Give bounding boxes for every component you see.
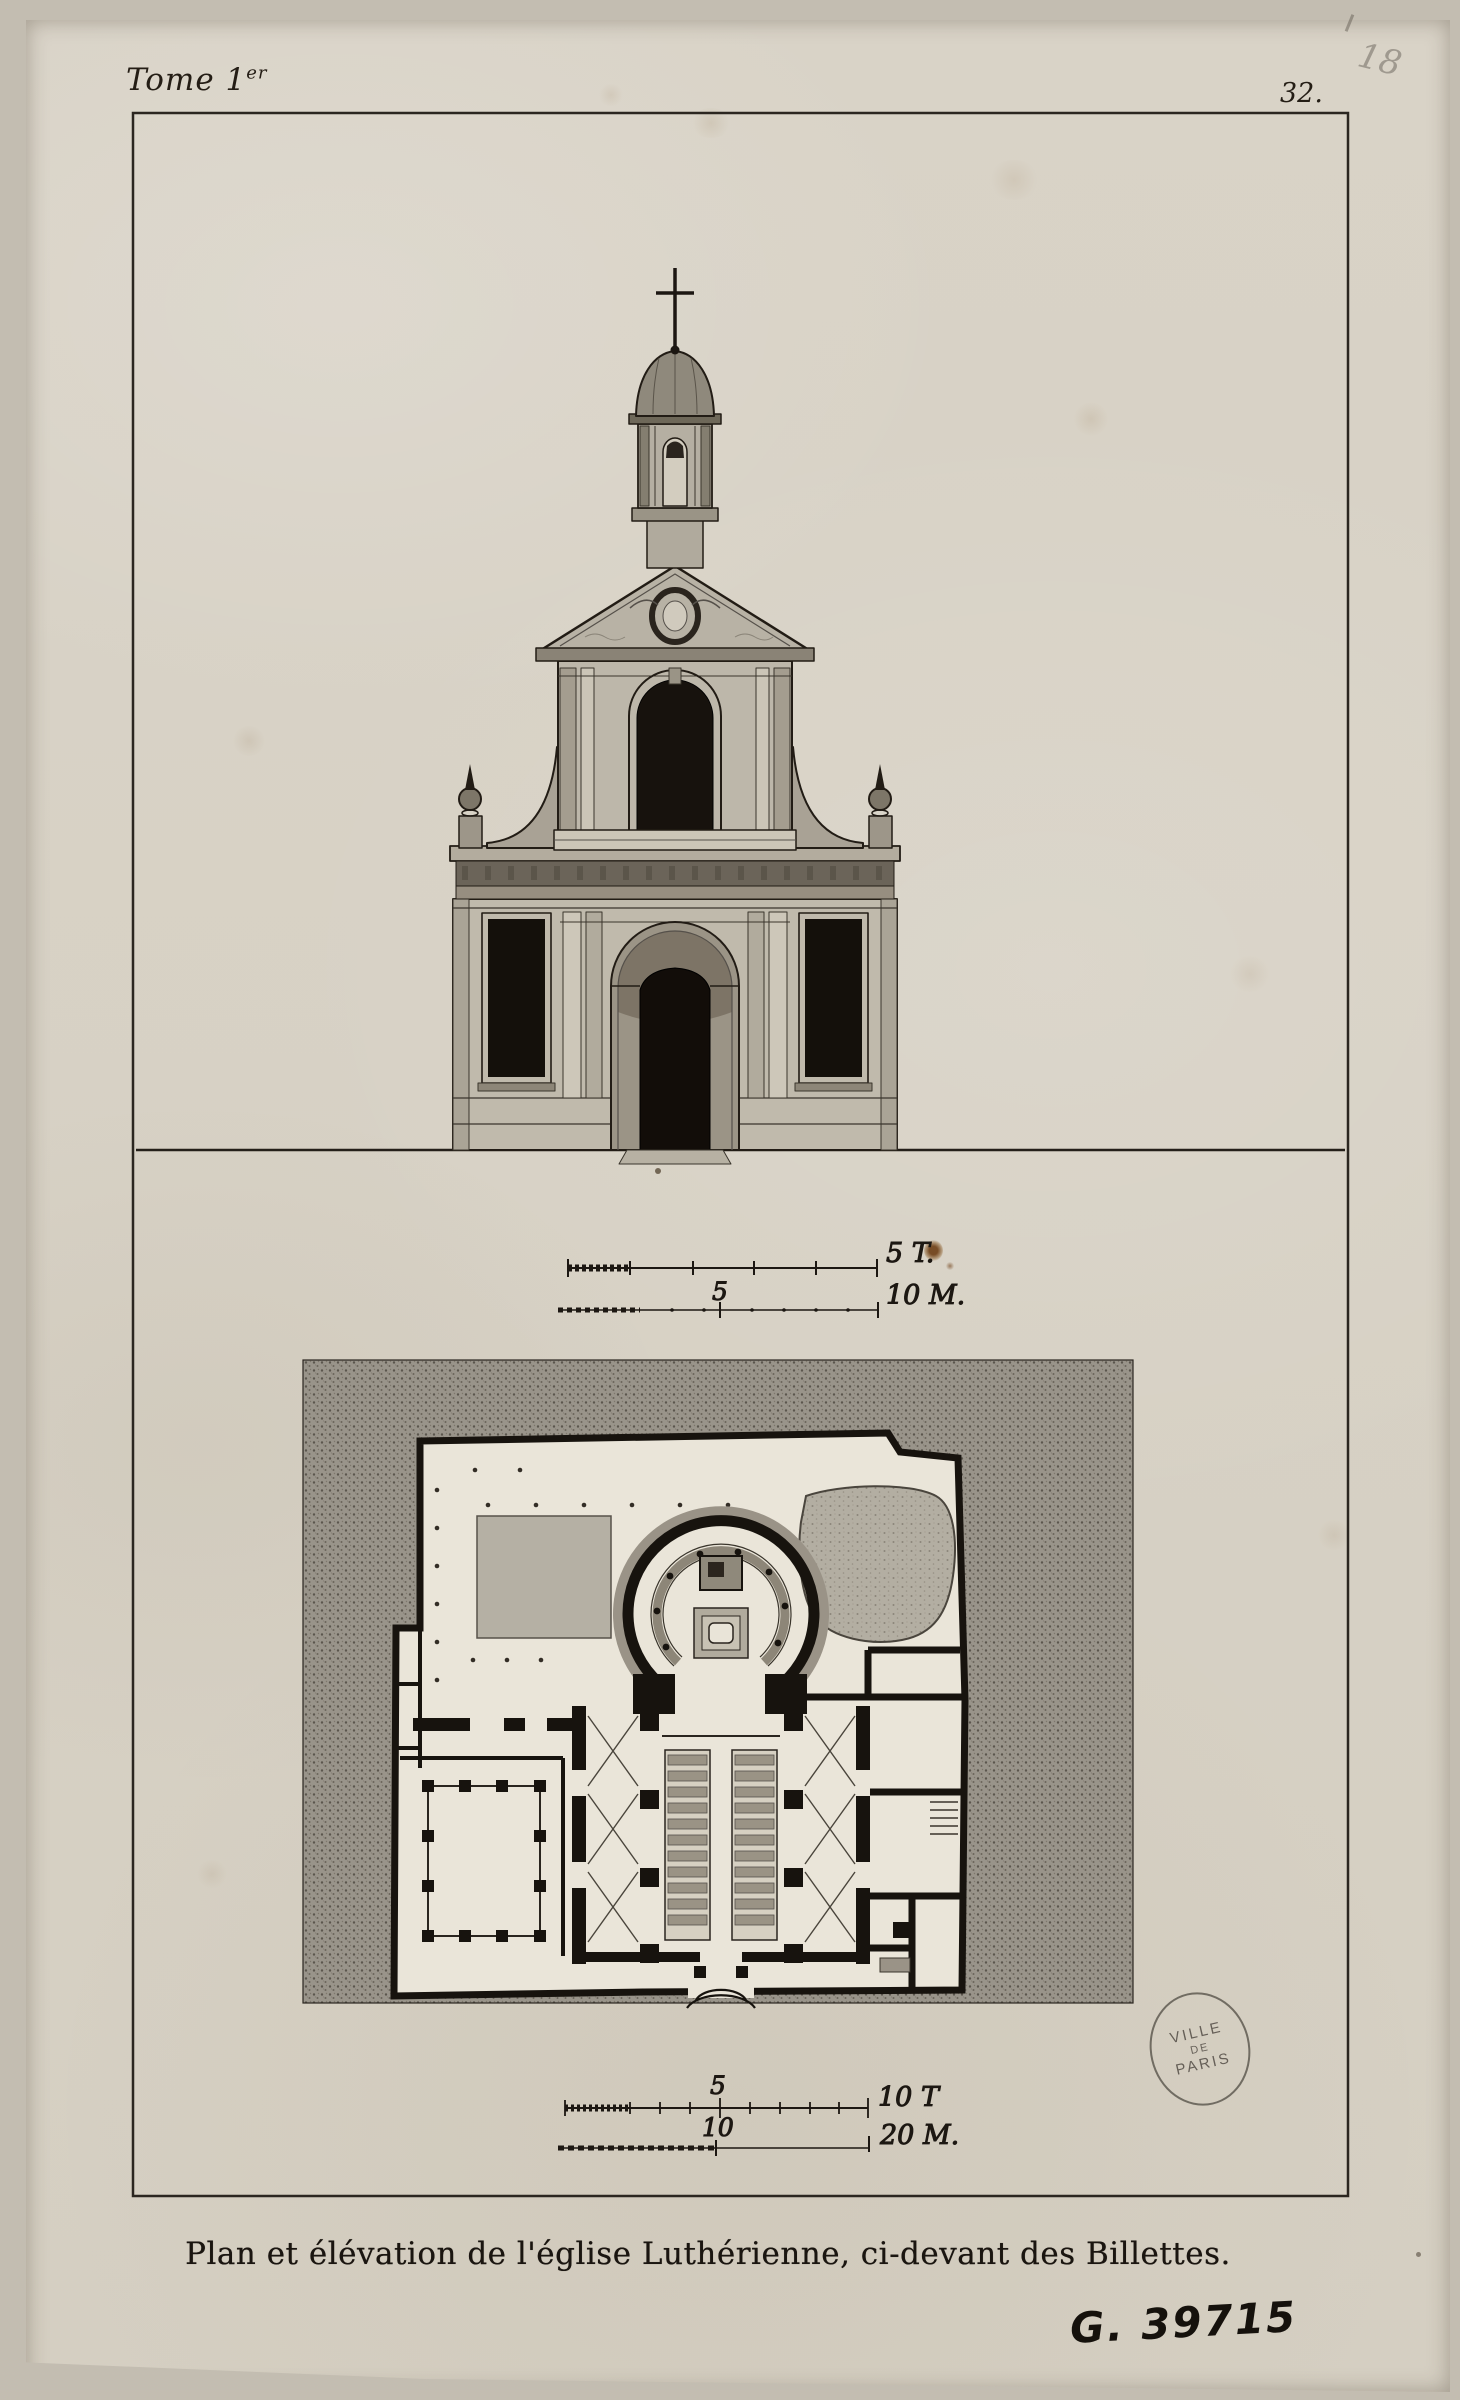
floor-plan-drawing [303, 1360, 1133, 2008]
finial-right [869, 764, 892, 848]
tome-label: Tome 1er [126, 62, 268, 98]
tome-label-superscript: er [246, 63, 267, 84]
cross-finial [656, 268, 694, 355]
elevation-meter-label: 10 M. [886, 1280, 965, 1311]
volute-left [487, 747, 564, 848]
narthex-wall [413, 1716, 580, 1733]
facade-upper-story [554, 661, 796, 850]
scanned-plate-photograph: 5 T. 5 10 M. [0, 0, 1460, 2400]
altar-platform [694, 1608, 748, 1658]
plate-caption: Plan et élévation de l'église Luthérienn… [185, 2236, 1231, 2272]
elevation-drawing [136, 268, 1345, 1164]
high-altar [700, 1556, 742, 1590]
side-window-right [795, 913, 872, 1091]
elevation-meter-mid-label: 5 [712, 1277, 728, 1306]
entrance-door [611, 922, 739, 1164]
page-number: 32. [1280, 78, 1323, 109]
volute-right [786, 747, 863, 848]
finial-left [459, 764, 482, 848]
plan-scale-meter: 10 20 M. [558, 2113, 959, 2156]
facade-lower-story [453, 899, 897, 1164]
main-entablature [450, 846, 900, 899]
parterre [477, 1516, 611, 1638]
plan-toise-label: 10 T [878, 2082, 941, 2113]
side-window-left [478, 913, 555, 1091]
pediment [536, 566, 814, 661]
tome-label-text: Tome 1 [126, 62, 246, 98]
plan-meter-mid-label: 10 [702, 2113, 734, 2142]
bell-lantern [629, 351, 721, 568]
elevation-scale-meter: 5 10 M. [558, 1277, 965, 1318]
elevation-toise-label: 5 T. [886, 1238, 934, 1269]
plan-meter-label: 20 M. [879, 2120, 959, 2151]
plan-toise-mid-label: 5 [710, 2071, 726, 2100]
plan-scale-toise: 5 10 T [565, 2071, 941, 2118]
elevation-scale-toise: 5 T. [568, 1238, 934, 1277]
